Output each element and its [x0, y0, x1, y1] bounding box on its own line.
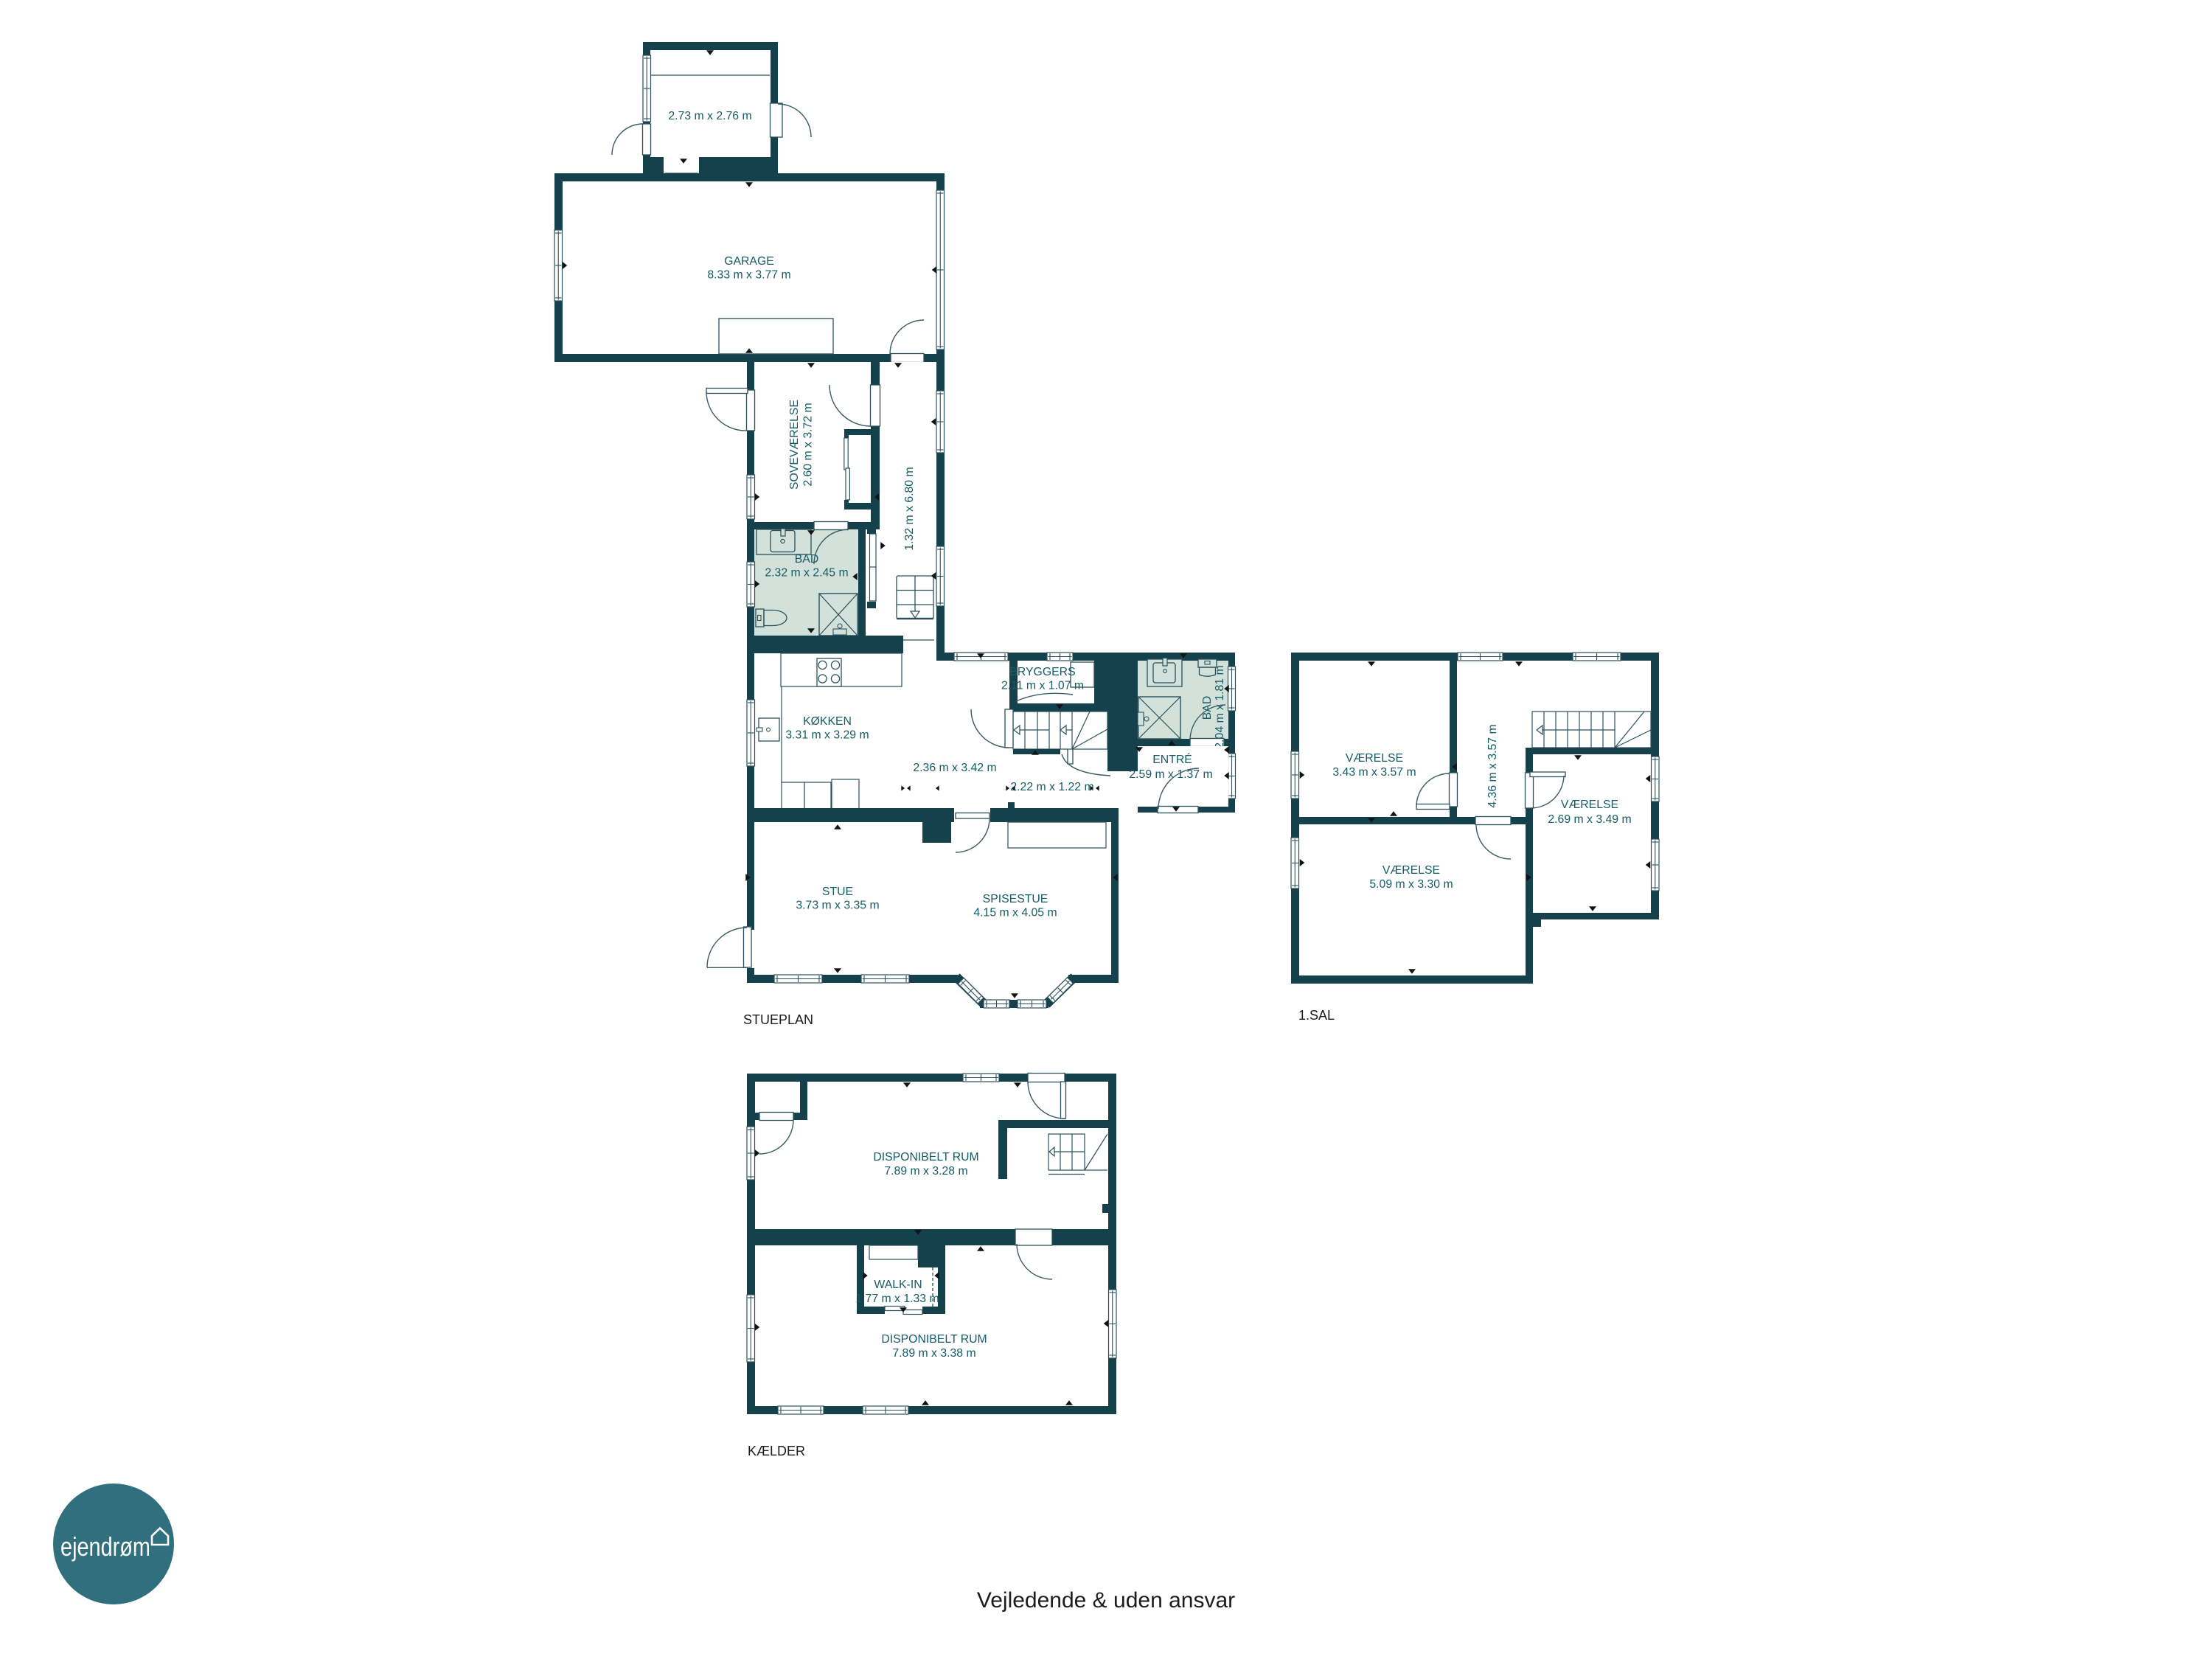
svg-text:ejendrøm: ejendrøm	[60, 1531, 150, 1562]
svg-text:BAD: BAD	[795, 553, 818, 566]
svg-text:2.11 m x 1.07 m: 2.11 m x 1.07 m	[1001, 679, 1084, 692]
svg-text:2.22 m x 1.22 m: 2.22 m x 1.22 m	[1010, 781, 1093, 793]
svg-text:4.15 m x 4.05 m: 4.15 m x 4.05 m	[973, 906, 1057, 919]
svg-text:WALK-IN: WALK-IN	[874, 1279, 922, 1291]
svg-text:SOVEVÆRELSE: SOVEVÆRELSE	[788, 400, 801, 490]
svg-text:GARAGE: GARAGE	[724, 255, 774, 268]
svg-text:VÆRELSE: VÆRELSE	[1561, 799, 1618, 811]
svg-text:8.33 m x 3.77 m: 8.33 m x 3.77 m	[707, 268, 790, 281]
svg-text:4.36 m x 3.57 m: 4.36 m x 3.57 m	[1486, 724, 1499, 807]
svg-text:7.89 m x 3.28 m: 7.89 m x 3.28 m	[884, 1165, 967, 1178]
svg-text:2.73 m x 2.76 m: 2.73 m x 2.76 m	[668, 110, 751, 122]
svg-text:STUEPLAN: STUEPLAN	[743, 1012, 813, 1027]
svg-text:2.69 m x 3.49 m: 2.69 m x 3.49 m	[1548, 813, 1631, 826]
svg-text:1.SAL: 1.SAL	[1298, 1008, 1335, 1023]
svg-text:STUE: STUE	[822, 886, 853, 898]
svg-text:ENTRÉ: ENTRÉ	[1152, 752, 1192, 766]
svg-text:1.77 m x 1.33 m: 1.77 m x 1.33 m	[855, 1293, 939, 1305]
svg-text:3.73 m x 3.35 m: 3.73 m x 3.35 m	[796, 899, 879, 911]
svg-text:Vejledende & uden ansvar: Vejledende & uden ansvar	[977, 1588, 1235, 1613]
svg-text:BRYGGERS: BRYGGERS	[1009, 666, 1075, 678]
svg-text:2.04 m x 1.81 m: 2.04 m x 1.81 m	[1214, 665, 1226, 748]
svg-text:VÆRELSE: VÆRELSE	[1346, 752, 1403, 765]
svg-text:2.32 m x 2.45 m: 2.32 m x 2.45 m	[765, 566, 848, 579]
svg-text:KØKKEN: KØKKEN	[803, 715, 852, 728]
svg-text:3.31 m x 3.29 m: 3.31 m x 3.29 m	[785, 728, 869, 741]
svg-text:SPISESTUE: SPISESTUE	[983, 893, 1048, 905]
svg-text:BAD: BAD	[1201, 696, 1214, 720]
svg-text:2.59 m x 1.37 m: 2.59 m x 1.37 m	[1129, 768, 1212, 781]
svg-text:2.60 m x 3.72 m: 2.60 m x 3.72 m	[801, 403, 814, 486]
svg-text:DISPONIBELT RUM: DISPONIBELT RUM	[881, 1333, 987, 1346]
svg-text:5.09 m x 3.30 m: 5.09 m x 3.30 m	[1369, 878, 1453, 891]
svg-text:3.43 m x 3.57 m: 3.43 m x 3.57 m	[1332, 766, 1416, 779]
svg-text:VÆRELSE: VÆRELSE	[1382, 864, 1440, 877]
svg-text:2.36 m x 3.42 m: 2.36 m x 3.42 m	[913, 762, 996, 774]
svg-text:KÆLDER: KÆLDER	[748, 1444, 805, 1458]
svg-text:7.89 m x 3.38 m: 7.89 m x 3.38 m	[892, 1347, 975, 1360]
svg-text:1.32 m x 6.80 m: 1.32 m x 6.80 m	[903, 467, 916, 550]
svg-text:DISPONIBELT RUM: DISPONIBELT RUM	[873, 1151, 978, 1164]
